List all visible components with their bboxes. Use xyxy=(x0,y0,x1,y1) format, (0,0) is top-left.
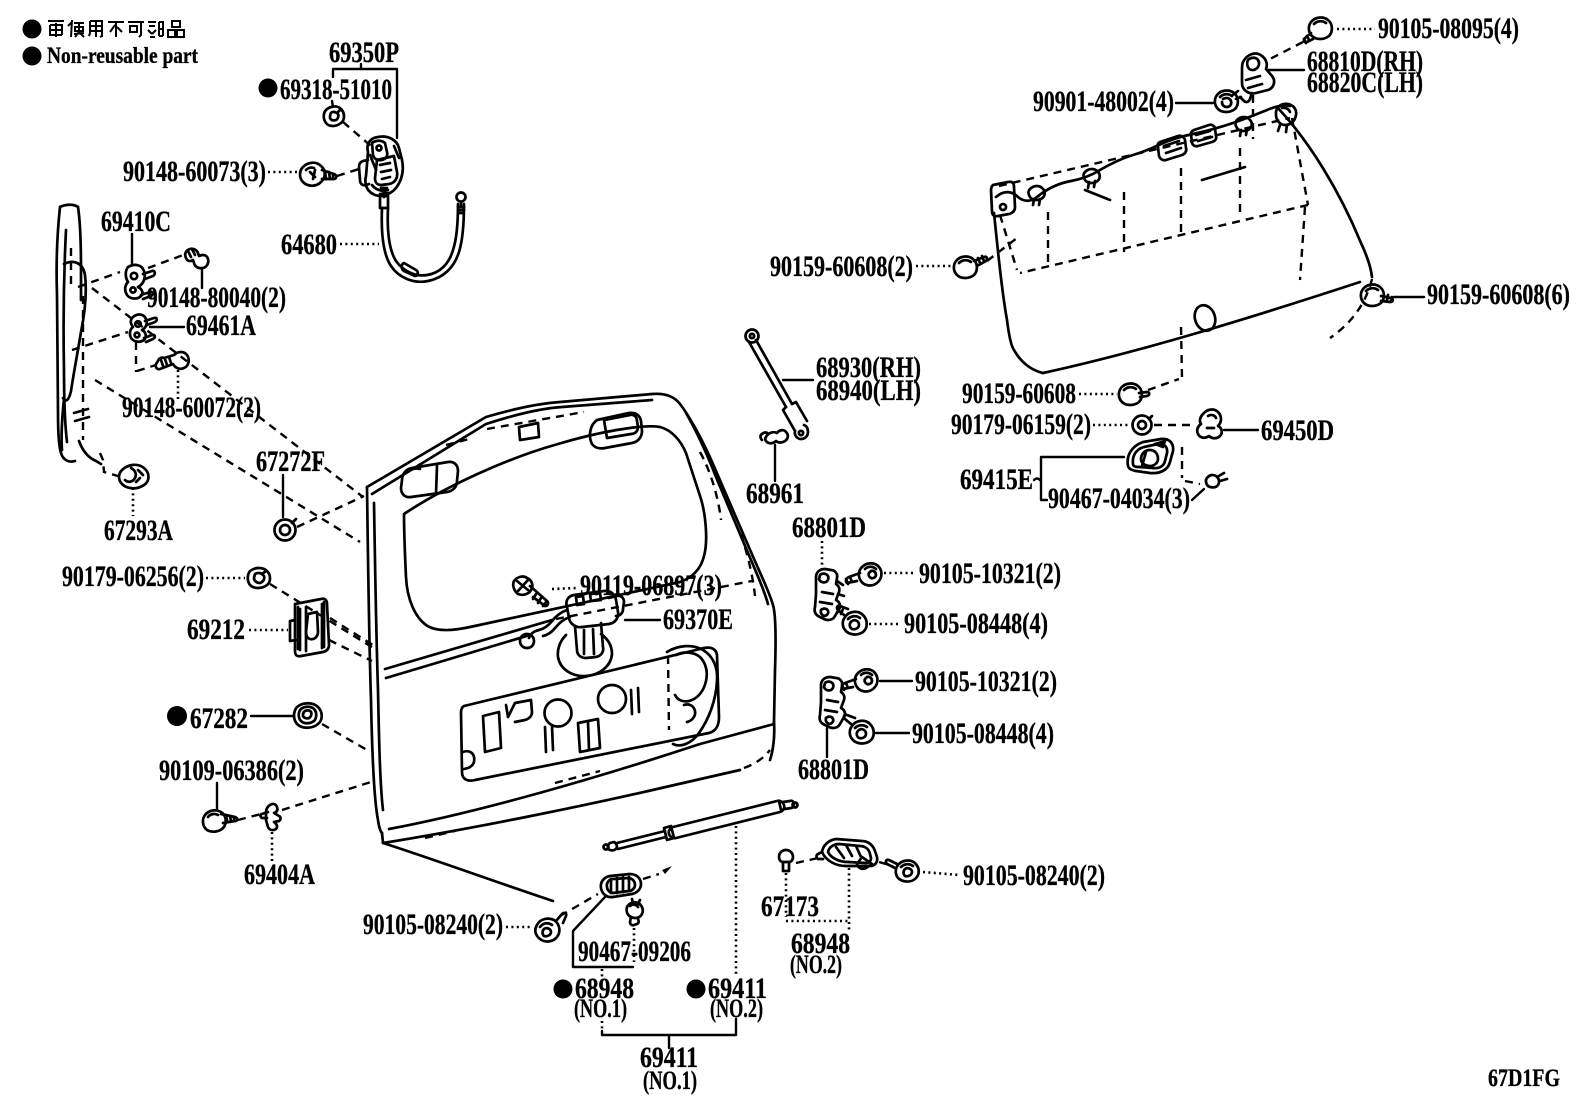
svg-text:(NO.1): (NO.1) xyxy=(574,994,627,1023)
svg-text:90159-60608: 90159-60608 xyxy=(962,377,1076,410)
svg-text:69404A: 69404A xyxy=(244,858,315,891)
svg-text:90179-06256(2): 90179-06256(2) xyxy=(62,560,204,593)
svg-text:(NO.2): (NO.2) xyxy=(790,950,842,979)
svg-text:69450D: 69450D xyxy=(1261,414,1334,447)
svg-text:90105-08095(4): 90105-08095(4) xyxy=(1378,12,1519,45)
svg-text:68801D: 68801D xyxy=(798,753,869,786)
svg-text:Non-reusable part: Non-reusable part xyxy=(47,43,198,68)
svg-text:90148-60073(3): 90148-60073(3) xyxy=(123,155,266,188)
svg-text:90901-48002(4): 90901-48002(4) xyxy=(1033,85,1174,118)
svg-text:67173: 67173 xyxy=(761,890,819,923)
svg-text:68820C(LH): 68820C(LH) xyxy=(1307,66,1423,99)
svg-text:68961: 68961 xyxy=(746,477,804,510)
svg-text:64680: 64680 xyxy=(281,228,337,261)
svg-text:90105-10321(2): 90105-10321(2) xyxy=(919,557,1061,590)
svg-text:90179-06159(2): 90179-06159(2) xyxy=(951,408,1091,441)
svg-text:69410C: 69410C xyxy=(101,205,171,238)
svg-text:69415E: 69415E xyxy=(960,463,1033,496)
svg-text:67272F: 67272F xyxy=(256,445,325,478)
svg-text:67282: 67282 xyxy=(190,702,248,735)
svg-text:67293A: 67293A xyxy=(104,514,173,547)
svg-text:90105-08240(2): 90105-08240(2) xyxy=(963,859,1105,892)
svg-text:68801D: 68801D xyxy=(792,511,866,544)
svg-text:90467-04034(3): 90467-04034(3) xyxy=(1048,482,1190,515)
svg-text:69461A: 69461A xyxy=(186,309,256,342)
svg-text:90159-60608(6): 90159-60608(6) xyxy=(1427,278,1570,311)
svg-text:69212: 69212 xyxy=(187,613,245,646)
svg-text:90467-09206: 90467-09206 xyxy=(578,935,691,968)
svg-text:90109-06386(2): 90109-06386(2) xyxy=(159,754,304,787)
svg-text:69370E: 69370E xyxy=(663,603,733,636)
svg-text:90105-10321(2): 90105-10321(2) xyxy=(915,665,1057,698)
svg-text:90105-08240(2): 90105-08240(2) xyxy=(363,908,503,941)
svg-text:68940(LH): 68940(LH) xyxy=(816,374,921,407)
svg-text:69318-51010: 69318-51010 xyxy=(280,73,392,106)
svg-text:90105-08448(4): 90105-08448(4) xyxy=(904,607,1048,640)
svg-text:90159-60608(2): 90159-60608(2) xyxy=(770,250,913,283)
svg-text:(NO.1): (NO.1) xyxy=(643,1066,697,1095)
svg-text:90148-60072(2): 90148-60072(2) xyxy=(122,391,261,424)
svg-text:90105-08448(4): 90105-08448(4) xyxy=(912,717,1054,750)
svg-text:67D1FG: 67D1FG xyxy=(1488,1065,1560,1092)
svg-text:69350P: 69350P xyxy=(329,36,399,69)
